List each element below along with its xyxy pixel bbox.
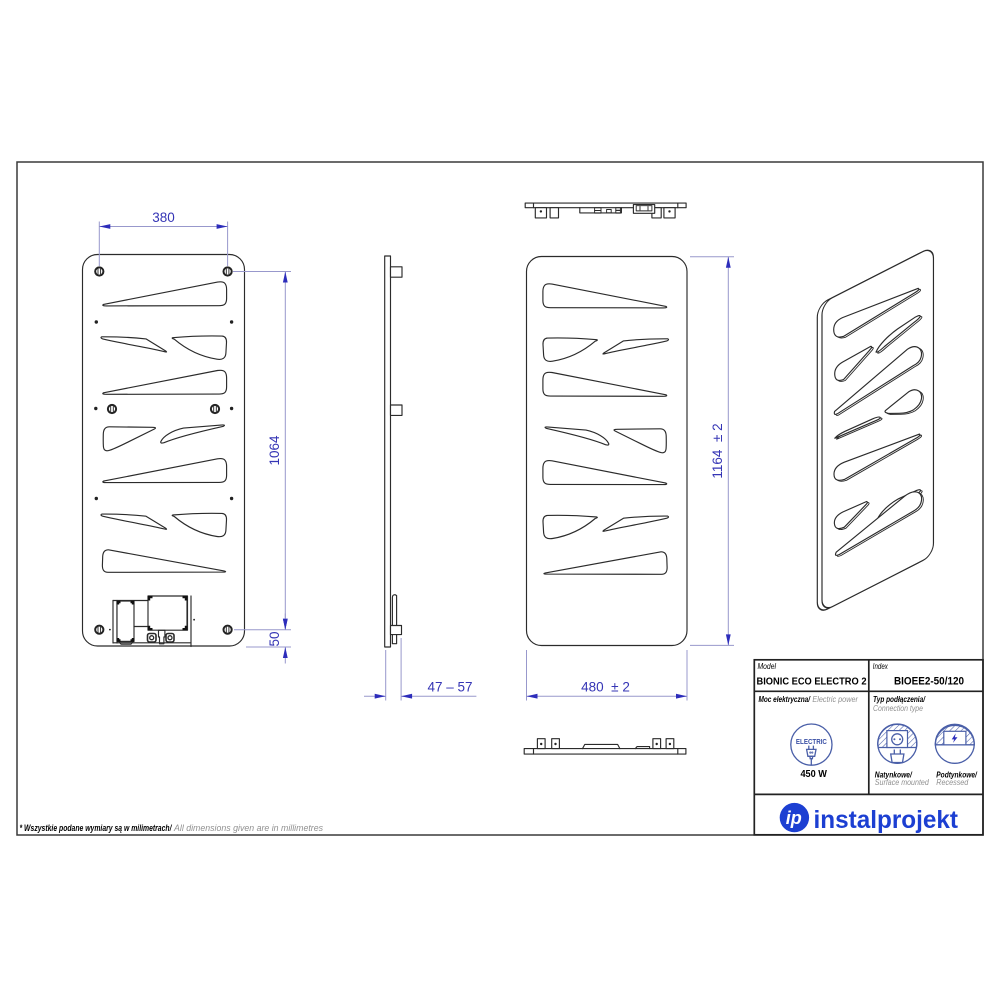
svg-text:380: 380: [152, 210, 175, 225]
svg-text:1164 ± 2: 1164 ± 2: [710, 423, 725, 478]
svg-text:Model: Model: [758, 661, 777, 671]
svg-text:All dimensions given are in mi: All dimensions given are in millimetres: [173, 823, 323, 833]
svg-text:Surface mounted: Surface mounted: [875, 777, 929, 787]
svg-text:* Wszystkie podane wymiary są: * Wszystkie podane wymiary są w milimetr…: [20, 823, 173, 833]
svg-text:ELECTRIC: ELECTRIC: [796, 737, 827, 746]
svg-text:BIOEE2-50/120: BIOEE2-50/120: [894, 676, 964, 688]
svg-text:Electric power: Electric power: [812, 694, 859, 704]
svg-text:Moc elektryczna/: Moc elektryczna/: [759, 694, 812, 704]
svg-text:480 ± 2: 480 ± 2: [581, 680, 630, 695]
svg-text:BIONIC ECO ELECTRO 2: BIONIC ECO ELECTRO 2: [757, 677, 867, 688]
svg-text:Index: Index: [873, 661, 889, 671]
svg-text:instalprojekt: instalprojekt: [814, 806, 959, 834]
svg-text:1064: 1064: [267, 435, 282, 466]
svg-text:50: 50: [267, 631, 282, 646]
svg-text:Recessed: Recessed: [936, 777, 968, 787]
svg-text:ip: ip: [786, 808, 802, 828]
svg-text:47 – 57: 47 – 57: [427, 680, 472, 695]
svg-text:450 W: 450 W: [800, 768, 827, 780]
svg-text:Connection type: Connection type: [873, 703, 923, 713]
